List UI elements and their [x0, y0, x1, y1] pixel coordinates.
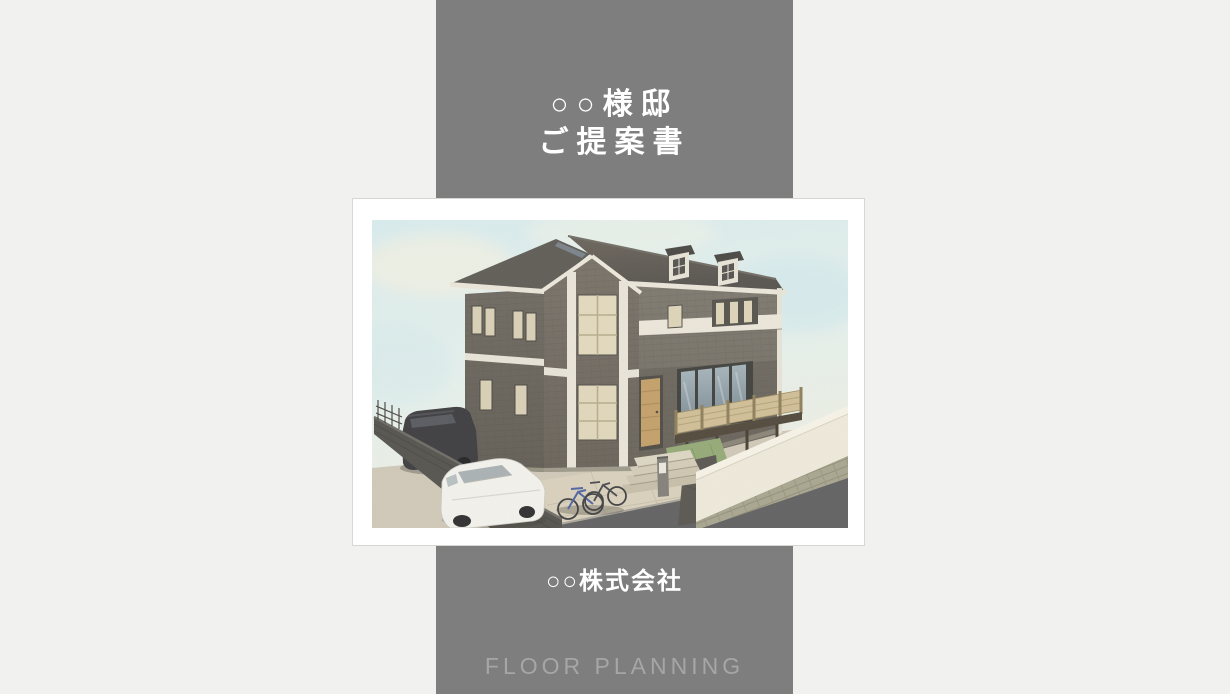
footer-label: FLOOR PLANNING [436, 653, 793, 680]
title-line-1: ○○様邸 [436, 86, 793, 124]
house-rendering-svg [372, 220, 848, 528]
photo-card [352, 198, 865, 546]
company-name: ○○株式会社 [436, 561, 793, 596]
document-title: ○○様邸 ご提案書 [436, 86, 793, 162]
house-rendering-illustration [372, 220, 848, 528]
title-line-2: ご提案書 [436, 124, 793, 162]
